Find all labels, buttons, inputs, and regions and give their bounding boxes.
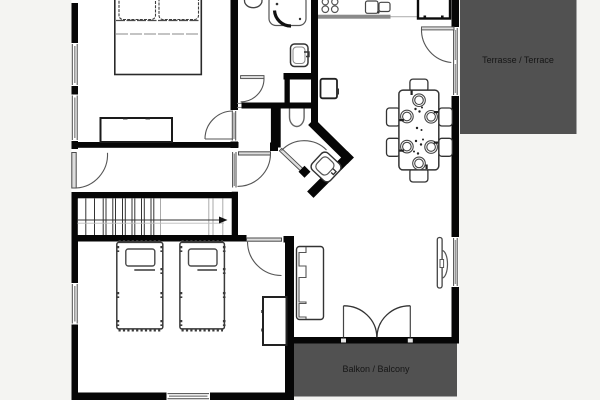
svg-text:Terrasse / Terrace: Terrasse / Terrace [482, 55, 554, 65]
svg-text:Balkon / Balcony: Balkon / Balcony [342, 364, 410, 374]
